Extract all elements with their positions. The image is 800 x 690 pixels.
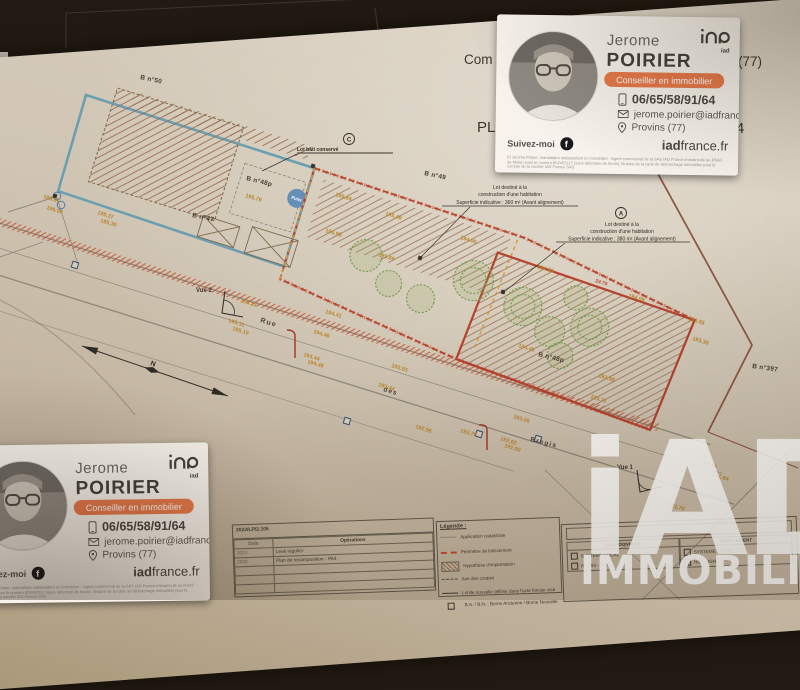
spot-elevation: 195.79 [244, 193, 262, 204]
agent-last-name: POIRIER [606, 50, 691, 73]
parcel-b48p-left: B n°48p [246, 174, 274, 188]
agent-email: jerome.poirier@iadfrance.fr [88, 535, 210, 548]
facebook-icon: f [31, 567, 44, 580]
agent-portrait [508, 30, 599, 121]
svg-text:Superficie indicative : 380 m²: Superficie indicative : 380 m² (Avant al… [568, 237, 676, 243]
titleblock-operations-table: 2022/LP/2.105 Date Opérations 2022Levé r… [232, 517, 436, 597]
card-legal-text: El Jerome Poirier, mandataire indépendan… [507, 156, 728, 173]
pin-icon [88, 550, 97, 561]
agent-location: Provins (77) [88, 548, 210, 561]
agent-phone: 06/65/58/91/64 [618, 92, 740, 108]
spot-elevation: 193.76 [459, 428, 477, 439]
agent-portrait [0, 460, 68, 551]
marker-a: A [619, 212, 624, 218]
portrait-photo [509, 31, 598, 120]
agent-location: Provins (77) [617, 122, 740, 135]
mail-icon [618, 110, 629, 118]
survey-system-block: COORDONNÉES SYSTEME LOCAL RGF93 - CC49 N… [561, 516, 800, 602]
card-legal-text: El Jerome Poirier, mandataire indépendan… [0, 584, 200, 601]
agent-first-name: Jerome [75, 459, 160, 477]
iad-logo: iad [700, 27, 730, 54]
agent-last-name: POIRIER [75, 477, 160, 500]
spot-elevation: 192.90 [503, 443, 521, 454]
spot-elevation: 191.70 [667, 502, 685, 513]
vue2-label: Vue 2 [196, 288, 212, 294]
portrait-photo [0, 461, 67, 550]
business-card-top: iad Jerome POIRIER Conseiller en immobil… [495, 14, 740, 175]
leveling-column: NIVELLEMENT SYSTEME LOCAL NGF - IGN69 [679, 534, 793, 568]
svg-text:construction d'une habitation: construction d'une habitation [478, 192, 542, 198]
marker-c: C [347, 138, 352, 144]
iad-logo-glyph [700, 27, 730, 45]
legend: Légende : Application cadastrale Périmèt… [436, 517, 563, 597]
perimeter-dash-symbol [441, 551, 457, 561]
iadfrance-url: iadfrance.fr [133, 563, 200, 579]
coordinates-column: COORDONNÉES SYSTEME LOCAL RGF93 - CC49 [566, 538, 680, 572]
title-fragment-commune: Com [464, 52, 493, 67]
pin-icon [617, 122, 626, 133]
sheet-frame-lines [66, 0, 383, 48]
svg-text:construction d'une habitation: construction d'une habitation [590, 229, 654, 235]
follow-me: Suivez-moi f [0, 567, 44, 581]
road-name-bregis: Bregis [530, 436, 558, 449]
agent-role-badge: Conseiller en immobilier [604, 72, 724, 89]
svg-text:Superficie indicative : 360 m²: Superficie indicative : 360 m² (Avant al… [456, 200, 564, 206]
spot-elevation: 192.56 [414, 424, 432, 435]
spot-elevation: 194.46 [312, 329, 330, 340]
spot-elevation: 195.10 [231, 326, 249, 337]
lot-conserved-blue: Puits [55, 78, 326, 269]
spot-elevation: 194.41 [324, 309, 342, 320]
title-fragment-plan: PL [477, 119, 495, 136]
svg-text:Lot destiné à la: Lot destiné à la [493, 185, 527, 191]
spot-elevation: 196.06 [42, 194, 60, 205]
spot-elevation: 194.49 [306, 359, 324, 370]
existing-building-hatch [88, 88, 243, 221]
svg-text:Lot destiné à la: Lot destiné à la [605, 222, 639, 228]
spot-elevation: 193.06 [512, 414, 530, 425]
cadastral-line-symbol [440, 536, 456, 545]
iad-logo-glyph [168, 452, 198, 470]
lot-a-label: Lot destiné à la construction d'une habi… [568, 222, 676, 243]
follow-me: Suivez-moi f [507, 136, 573, 150]
checkbox [684, 558, 691, 565]
iad-logo: iad [168, 452, 198, 479]
north-arrow: N [81, 337, 231, 399]
phone-icon [88, 520, 97, 533]
checkbox [684, 548, 691, 555]
parcel-b397: B n°397 [752, 362, 779, 374]
checkbox [571, 562, 578, 569]
parcel-b49: B n°49 [424, 169, 447, 181]
mail-icon [88, 538, 99, 546]
spot-elevation: 195.30 [99, 218, 117, 229]
hatch-symbol [441, 562, 459, 573]
axis-line-symbol [442, 578, 458, 587]
spot-elevation: 191.84 [711, 472, 730, 483]
vue1-label: Vue 1 [617, 465, 633, 471]
conserved-lot-label: Lot bâti conservé [297, 147, 339, 153]
borne-square-symbol [448, 603, 455, 610]
facebook-icon: f [560, 137, 573, 150]
iadfrance-url: iadfrance.fr [662, 138, 729, 154]
spot-elevation: 196.00 [45, 205, 63, 216]
new-limit-line-symbol [442, 593, 458, 602]
photo-of-cadastral-plan: { "title_fragments": {"com": "Com", "dep… [0, 0, 800, 600]
parcel-b50: B n°50 [140, 73, 163, 85]
agent-email: jerome.poirier@iadfrance.fr [618, 109, 740, 122]
title-fragment-dept: (77) [738, 54, 762, 69]
agent-first-name: Jerome [607, 32, 692, 50]
business-card-bottom: iad Jerome POIRIER Conseiller en immobil… [0, 442, 210, 603]
phone-icon [618, 93, 627, 106]
spot-elevation: 193.93 [390, 363, 408, 374]
agent-phone: 06/65/58/91/64 [88, 518, 210, 534]
spot-elevation: 193.30 [691, 336, 709, 347]
lot-b-label: Lot destiné à la construction d'une habi… [456, 185, 564, 206]
agent-role-badge: Conseiller en immobilier [74, 499, 194, 516]
checkbox [571, 552, 578, 559]
road-name-rue: Rue [259, 317, 277, 329]
